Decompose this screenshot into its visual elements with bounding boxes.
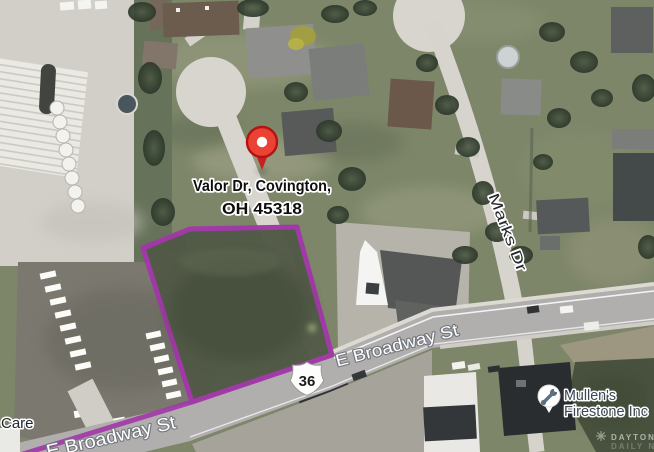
address-line2: OH 45318 — [222, 201, 302, 218]
route-number: 36 — [299, 373, 316, 390]
watermark-line1: DAYTON — [611, 433, 654, 442]
house-roof — [500, 78, 541, 115]
partial-business-label: Care — [1, 415, 34, 432]
watermark-line2: DAILY NEWS — [611, 442, 654, 451]
house-roof — [536, 198, 590, 235]
house-roof — [612, 129, 654, 149]
garage-roof — [540, 236, 560, 250]
business-label-line1: Mullen's — [564, 387, 616, 404]
industrial-yard — [0, 0, 172, 266]
house-roof — [308, 43, 369, 101]
steeple-window — [365, 282, 379, 294]
starburst-logo — [596, 431, 606, 441]
business-label-line2: Firestone Inc — [564, 403, 648, 420]
house-roof — [611, 7, 653, 53]
map-viewport: 36 Marks Dr E Broadway St E Broadway St … — [0, 0, 654, 452]
backyard-pool — [117, 94, 137, 114]
house-roof — [613, 153, 654, 221]
satellite-map[interactable]: 36 Marks Dr E Broadway St E Broadway St … — [0, 0, 654, 452]
house-roof — [162, 1, 239, 38]
house-roof — [387, 79, 434, 130]
address-line1: Valor Dr, Covington, — [193, 178, 331, 195]
backyard-pool — [497, 46, 519, 68]
